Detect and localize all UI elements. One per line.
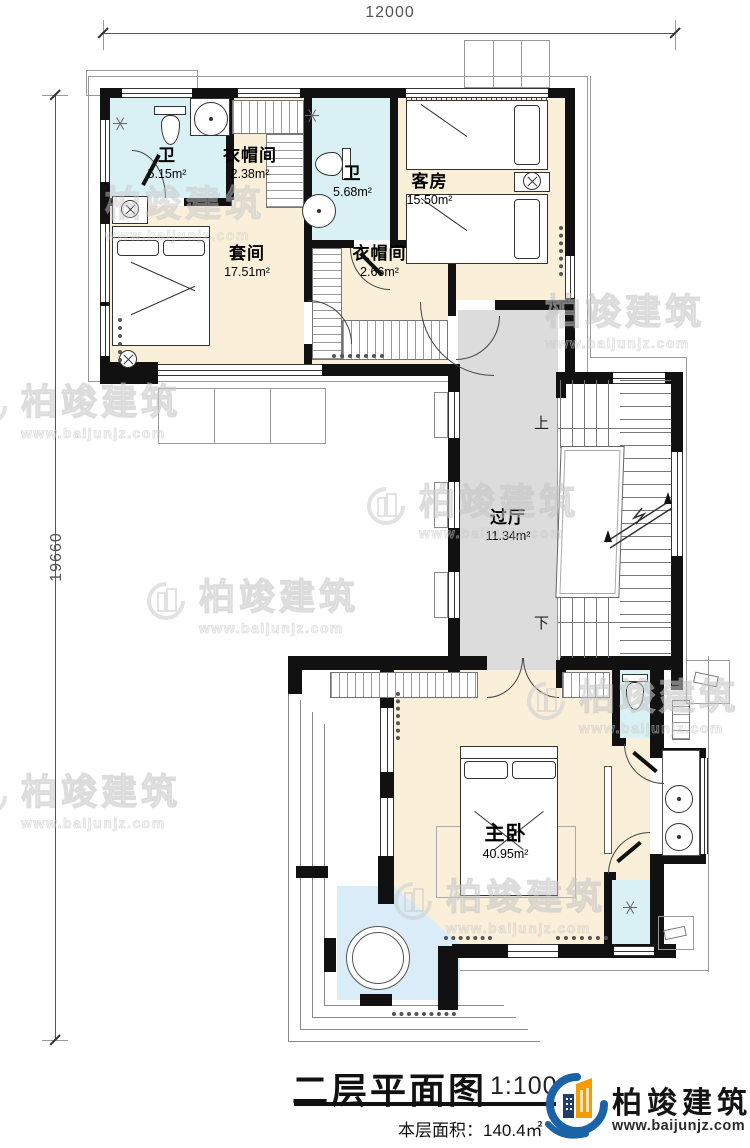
lamp bbox=[523, 172, 541, 190]
window bbox=[614, 946, 654, 956]
ceiling-light bbox=[304, 108, 320, 124]
room-label-suite: 套间17.51m² bbox=[192, 244, 302, 280]
window bbox=[448, 572, 460, 618]
brand-logo-icon bbox=[540, 1068, 614, 1144]
watermark-logo-icon bbox=[0, 384, 11, 430]
brand-name: 柏竣建筑 bbox=[612, 1078, 750, 1122]
window bbox=[380, 798, 394, 856]
washer bbox=[194, 102, 228, 136]
window bbox=[238, 88, 300, 98]
toilet-tank bbox=[622, 674, 648, 682]
stairs-up-label: 上 bbox=[534, 412, 549, 433]
window bbox=[100, 224, 110, 302]
window bbox=[100, 306, 110, 356]
master-wardrobe-left bbox=[330, 672, 478, 698]
floor-area-label: 本层面积： bbox=[398, 1121, 483, 1140]
window bbox=[158, 364, 322, 376]
pillow bbox=[514, 105, 540, 165]
cloak1-closet bbox=[232, 100, 304, 134]
ceiling-light bbox=[622, 900, 638, 916]
room-label-cloak1: 衣帽间2.38m² bbox=[195, 146, 305, 182]
room-label-guest: 客房15.50m² bbox=[372, 172, 487, 208]
room-label-hall: 过厅11.34m² bbox=[458, 508, 558, 544]
watermark-logo-icon bbox=[0, 774, 11, 820]
window bbox=[700, 758, 708, 854]
floor-area-value: 140.4㎡ bbox=[483, 1121, 543, 1140]
watermark: 柏竣建筑www.baijunjz.com bbox=[143, 568, 359, 636]
louver-window bbox=[672, 700, 690, 740]
lamp bbox=[121, 200, 139, 218]
planter bbox=[158, 388, 326, 444]
floorplan-canvas: 12000 19660 bbox=[0, 0, 750, 1148]
window bbox=[448, 392, 460, 438]
pillow bbox=[464, 761, 508, 779]
brand-url: www.baijunjz.com bbox=[612, 1118, 745, 1134]
window bbox=[380, 708, 394, 772]
dimension-top-value: 12000 bbox=[320, 4, 460, 22]
toilet-tank bbox=[154, 106, 186, 115]
chimney bbox=[464, 40, 550, 88]
window bbox=[122, 88, 192, 98]
mirror bbox=[604, 766, 612, 854]
master-wardrobe-right bbox=[562, 672, 610, 698]
room-label-cloak2: 衣帽间2.66m² bbox=[322, 244, 437, 280]
watermark: 柏竣建筑www.baijunjz.com bbox=[0, 763, 181, 831]
window bbox=[565, 256, 575, 298]
ceiling-light bbox=[112, 116, 128, 132]
drawing-title: 二层平面图 bbox=[292, 1062, 487, 1114]
window bbox=[406, 88, 548, 98]
sink bbox=[665, 785, 693, 813]
stairs-down-label: 下 bbox=[534, 612, 549, 633]
pillow bbox=[514, 199, 540, 259]
window bbox=[100, 120, 110, 182]
watermark-logo-icon bbox=[363, 484, 409, 530]
stair-direction-arrow bbox=[598, 478, 682, 552]
dimension-left-value: 19660 bbox=[48, 512, 66, 602]
sink bbox=[665, 823, 693, 851]
pillow bbox=[512, 761, 556, 779]
watermark-logo-icon bbox=[143, 579, 189, 625]
window bbox=[508, 944, 558, 958]
room-label-master: 主卧40.95m² bbox=[448, 822, 563, 862]
pillow bbox=[117, 240, 159, 256]
